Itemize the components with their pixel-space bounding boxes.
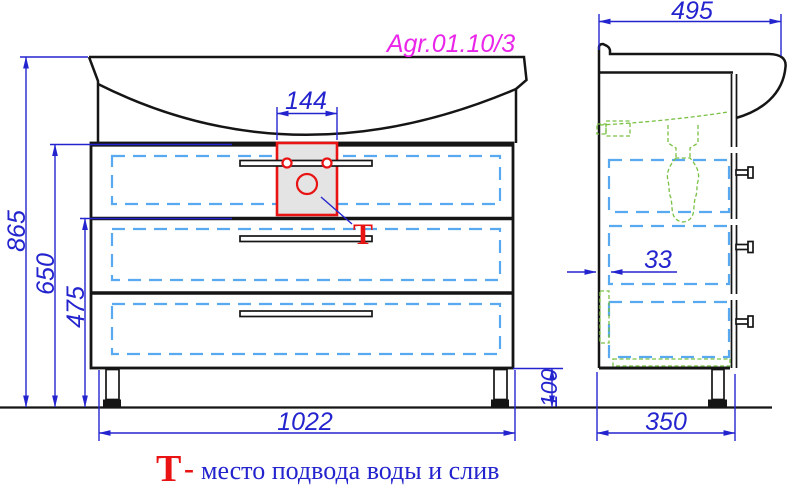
dim-wall-gap: 33	[567, 246, 677, 274]
pipe-hole-left	[283, 159, 292, 168]
dim-label-350: 350	[645, 408, 687, 436]
side-handle-1	[736, 167, 753, 178]
dim-label-1022: 1022	[277, 408, 333, 436]
dim-label-650: 650	[32, 253, 60, 295]
legend: T - место подвода воды и слив	[156, 448, 499, 487]
drawer-handle-1	[240, 161, 372, 167]
side-leg	[708, 370, 727, 407]
side-handle-2	[736, 242, 753, 253]
dim-cutout-width: 144	[277, 87, 337, 140]
water-supply-cutout	[277, 143, 337, 215]
dim-total-height: 865	[3, 57, 88, 407]
legend-text: место подвода воды и слив	[201, 456, 499, 485]
drain-funnel	[668, 125, 698, 158]
bottom-panel-strip	[613, 359, 730, 366]
dim-label-144: 144	[285, 87, 327, 115]
side-drawer-box-1	[609, 160, 729, 212]
front-leg-right	[491, 370, 509, 407]
dim-label-33: 33	[644, 246, 672, 274]
vanity-drawing-svg: T	[0, 0, 790, 487]
dim-label-475: 475	[62, 286, 90, 328]
side-handle-3	[736, 316, 753, 327]
technical-drawing-page: T	[0, 0, 790, 487]
pipe-hole-right	[323, 159, 332, 168]
back-panel-strip	[600, 291, 609, 343]
model-title: Agr.01.10/3	[385, 30, 515, 58]
side-drawer-box-3	[609, 302, 729, 357]
dim-total-width: 1022	[99, 370, 515, 441]
washbasin-side-profile	[599, 44, 786, 118]
dim-label-495: 495	[671, 0, 713, 25]
siphon-and-faucet-fittings	[597, 112, 730, 366]
dim-leg-height: 100	[513, 369, 563, 408]
dim-label-100: 100	[536, 369, 562, 408]
drawer-handle-3	[240, 311, 372, 317]
water-supply-marker: T	[353, 218, 373, 251]
side-view	[597, 44, 786, 407]
dim-label-865: 865	[3, 210, 31, 252]
legend-separator: -	[184, 452, 194, 485]
dim-depth-total: 495	[599, 0, 781, 56]
front-leg-left	[103, 370, 121, 407]
legend-symbol: T	[156, 448, 181, 487]
sink-underside-line	[600, 112, 728, 125]
